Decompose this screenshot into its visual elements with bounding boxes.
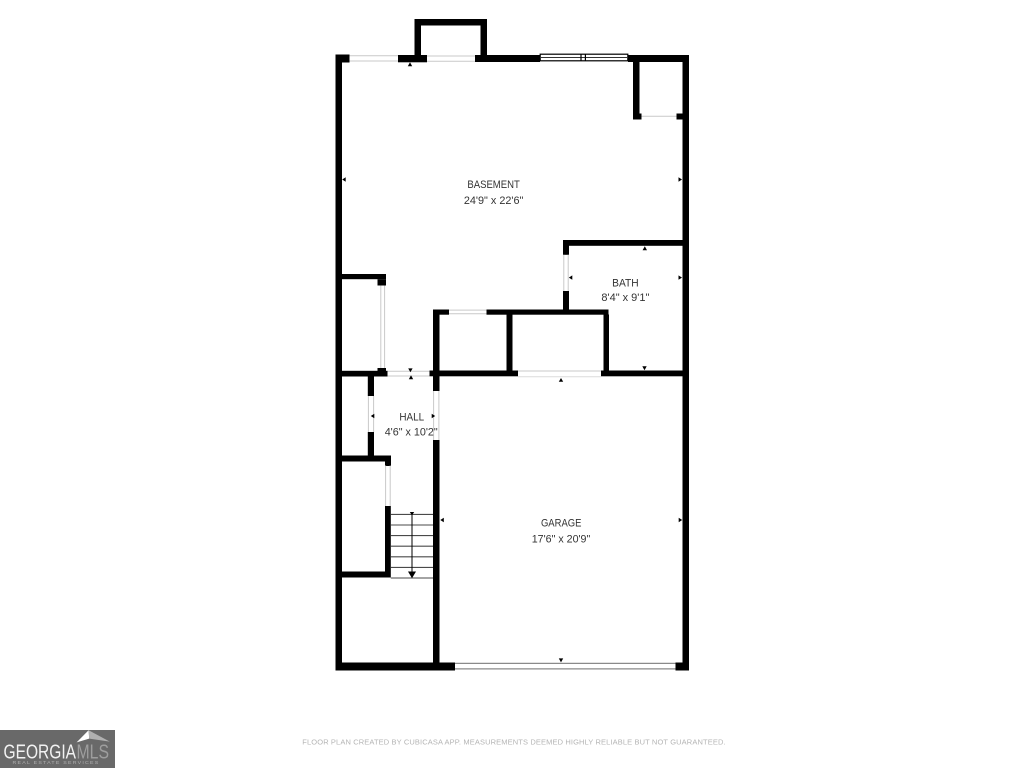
svg-text:GARAGE: GARAGE (541, 517, 582, 529)
svg-text:FLOOR PLAN CREATED BY CUBICASA: FLOOR PLAN CREATED BY CUBICASA APP. MEAS… (302, 737, 725, 746)
svg-text:HALL: HALL (399, 412, 424, 424)
svg-text:BATH: BATH (612, 277, 639, 289)
svg-text:4'6" x 10'2": 4'6" x 10'2" (385, 426, 438, 438)
svg-text:BASEMENT: BASEMENT (467, 179, 520, 191)
svg-text:24'9" x 22'6": 24'9" x 22'6" (464, 195, 524, 207)
svg-text:8'4" x 9'1": 8'4" x 9'1" (601, 292, 649, 304)
svg-text:17'6" x 20'9": 17'6" x 20'9" (532, 533, 591, 545)
svg-text:REAL ESTATE SERVICES: REAL ESTATE SERVICES (13, 760, 100, 765)
